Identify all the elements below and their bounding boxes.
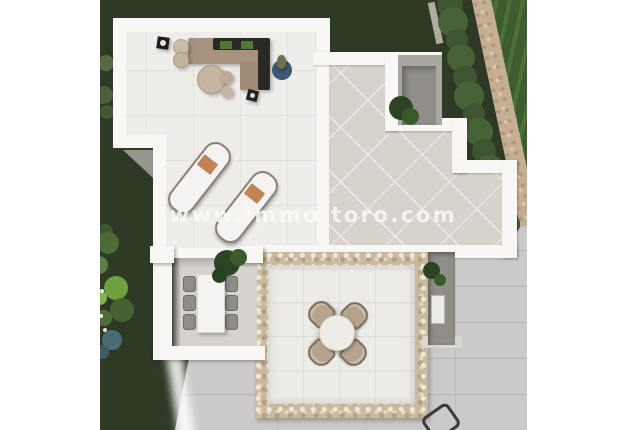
side-table-tray xyxy=(160,40,166,46)
sofa-green-cushion xyxy=(241,41,253,49)
left-margin xyxy=(0,0,100,430)
dining-chair xyxy=(183,276,196,292)
pergola-plant-3 xyxy=(212,268,227,283)
garden-flower xyxy=(100,289,104,293)
side-table-dot xyxy=(250,93,255,98)
courtyard-tree-highlight xyxy=(402,108,419,125)
pergola-pillar-left xyxy=(150,246,174,263)
aerial-villa-render: www.immo-toro.com xyxy=(100,0,527,430)
right-margin xyxy=(527,0,630,430)
sofa-side-cushions xyxy=(258,44,270,90)
pergola-left-wall xyxy=(153,258,172,348)
dining-chair xyxy=(225,276,238,292)
channel-cabinet xyxy=(431,295,445,324)
pergola-inner-shadow xyxy=(172,258,181,346)
pergola-bottom-wall xyxy=(153,346,265,360)
olive-planter xyxy=(277,55,286,69)
dining-chair xyxy=(225,314,238,330)
garden-flower xyxy=(100,314,103,318)
sofa-green-cushion xyxy=(220,41,232,49)
dining-chair xyxy=(183,314,196,330)
coffee-table-small xyxy=(220,71,233,84)
coffee-table-small xyxy=(221,86,233,98)
round-dining-table xyxy=(319,315,355,351)
watermark-text: www.immo-toro.com xyxy=(100,203,527,227)
garden-flower xyxy=(103,328,107,332)
pouf xyxy=(173,52,189,68)
lounger-towel xyxy=(244,183,265,204)
dining-chair xyxy=(225,295,238,311)
lounger-towel xyxy=(197,154,218,175)
channel-plant-2 xyxy=(434,274,446,286)
dining-chair xyxy=(183,295,196,311)
screenshot-canvas: www.immo-toro.com xyxy=(0,0,630,430)
pergola-plant-2 xyxy=(230,249,247,266)
